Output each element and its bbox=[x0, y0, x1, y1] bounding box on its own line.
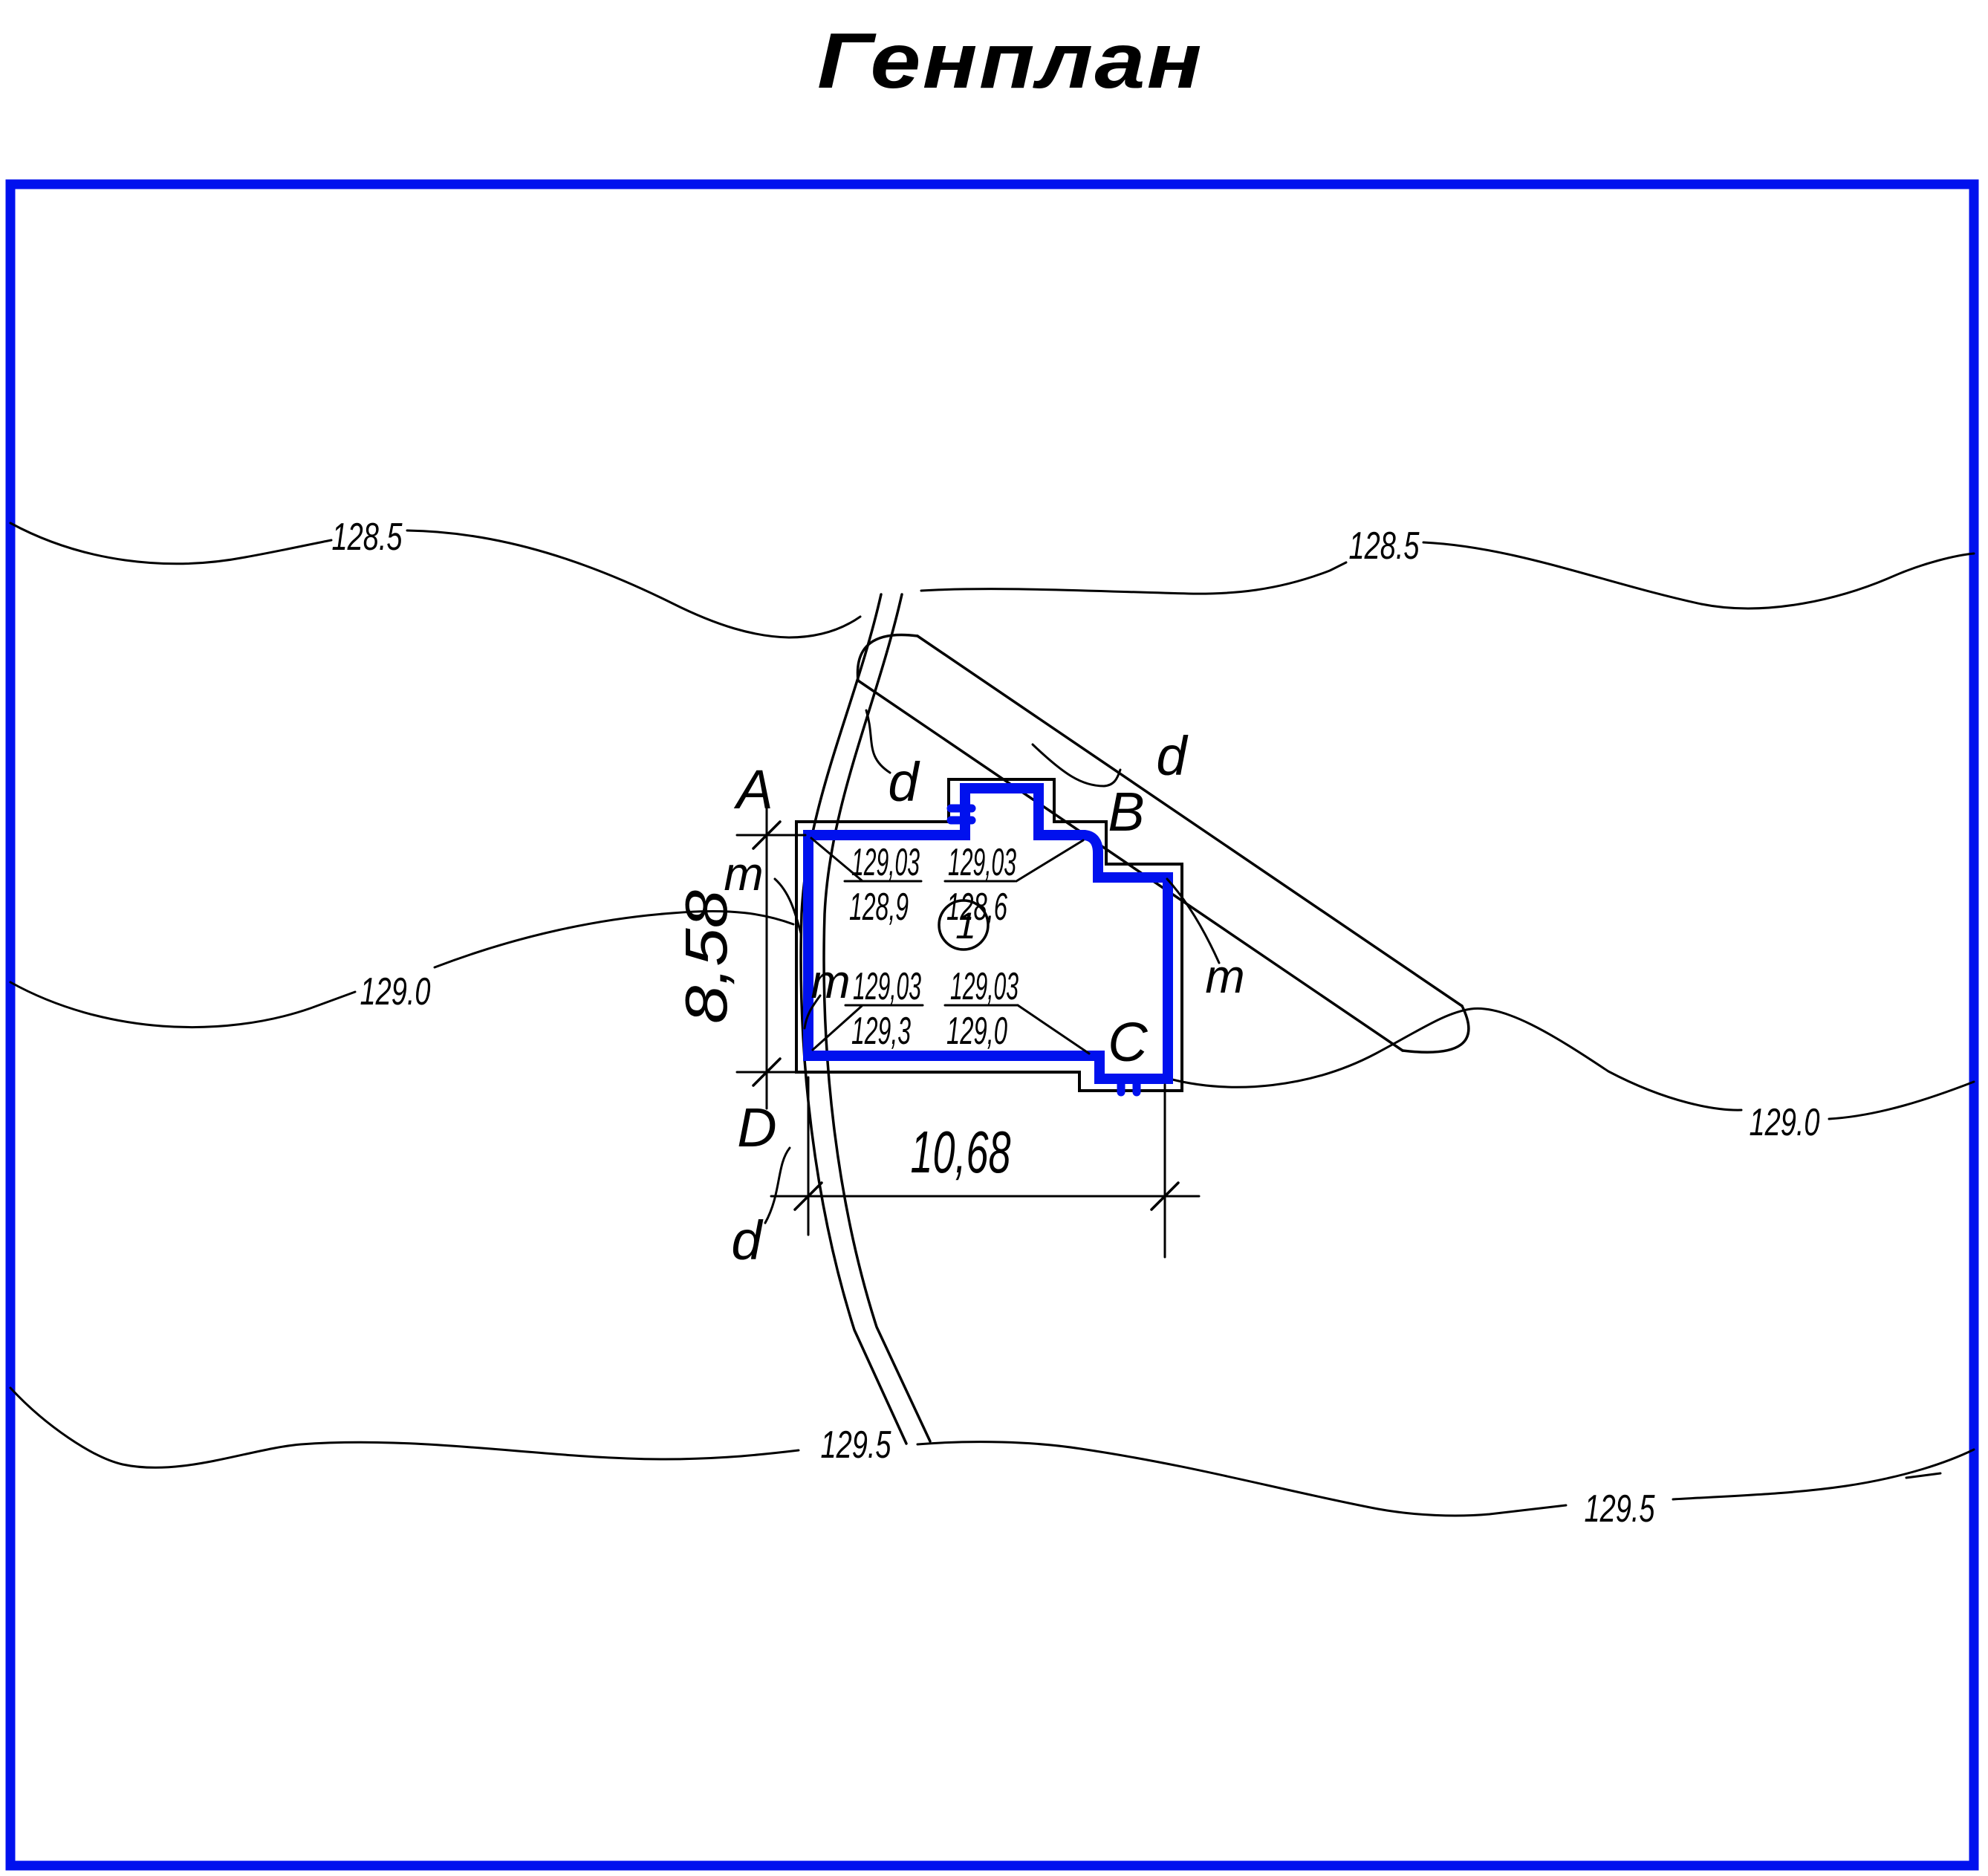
leader-walkway-top bbox=[866, 710, 890, 773]
contour-129-0-left-b bbox=[435, 911, 793, 967]
corner-label-c: C bbox=[1108, 1011, 1148, 1073]
road-end-cap bbox=[1403, 1006, 1469, 1052]
dimension-width: 10,68 bbox=[771, 1077, 1199, 1257]
road-label: d bbox=[1156, 725, 1189, 787]
contour-129-0-right-b bbox=[1829, 1082, 1974, 1119]
elevation-br-proposed: 129,03 bbox=[950, 965, 1019, 1008]
genplan-drawing: Генплан 128.5 128.5 129.0 129.0 129.5 12… bbox=[0, 0, 1988, 1876]
elevation-tr-proposed: 129,03 bbox=[948, 841, 1016, 884]
corner-label-b: B bbox=[1108, 781, 1144, 843]
leader-corner-b bbox=[1016, 840, 1083, 881]
dimension-height-value: 8,58 bbox=[673, 889, 739, 1024]
contour-label-128-5-left: 128.5 bbox=[332, 516, 403, 559]
elevation-tl-existing: 128,9 bbox=[849, 886, 909, 929]
elevation-tr-existing: 128,6 bbox=[946, 886, 1007, 929]
contour-129-0-left-a bbox=[10, 982, 355, 1028]
m-mark-right: m bbox=[1205, 950, 1244, 1003]
contour-128-5-mid bbox=[407, 530, 860, 637]
contour-129-0-right-a bbox=[1169, 1008, 1741, 1110]
elevation-bl-proposed: 129,03 bbox=[853, 965, 921, 1008]
contour-128-5-right-a bbox=[921, 562, 1346, 594]
elevation-bl-existing: 129,3 bbox=[851, 1010, 911, 1053]
contour-128-5-right-b bbox=[1423, 542, 1974, 608]
contour-label-129-5-left: 129.5 bbox=[821, 1424, 892, 1467]
road-start-cap bbox=[857, 635, 917, 681]
dimension-width-value: 10,68 bbox=[911, 1119, 1011, 1185]
contour-label-128-5-right: 128.5 bbox=[1349, 525, 1420, 568]
contour-129-5-dash bbox=[1906, 1473, 1940, 1478]
drawing-title: Генплан bbox=[817, 17, 1203, 105]
leader-corner-c bbox=[1018, 1005, 1089, 1054]
m-mark-inner: m bbox=[811, 955, 850, 1008]
contour-label-129-5-right: 129.5 bbox=[1585, 1487, 1656, 1531]
contour-129-5-left bbox=[10, 1388, 799, 1467]
elevation-br-existing: 129,0 bbox=[946, 1010, 1007, 1053]
corner-label-d: D bbox=[737, 1097, 776, 1158]
elevation-tl-proposed: 129,03 bbox=[851, 841, 920, 884]
contour-129-5-mid bbox=[917, 1442, 1566, 1516]
contour-label-129-0-left: 129.0 bbox=[360, 970, 431, 1013]
walkway-label-top: d bbox=[888, 751, 920, 813]
walkway-label-bottom: d bbox=[731, 1210, 764, 1271]
contour-128-5-left bbox=[10, 523, 331, 564]
road-upper-edge bbox=[917, 636, 1462, 1006]
leader-walkway-bottom bbox=[765, 1148, 790, 1223]
contour-label-129-0-right: 129.0 bbox=[1750, 1101, 1820, 1144]
